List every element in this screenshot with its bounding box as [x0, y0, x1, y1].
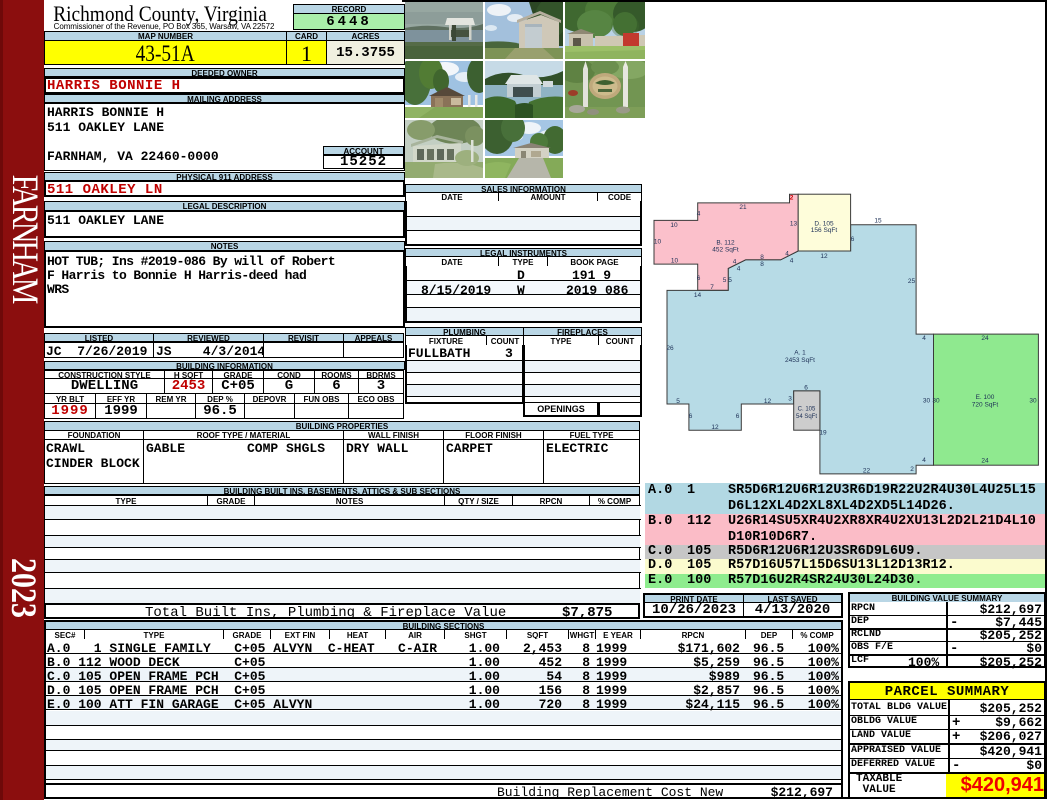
svg-text:21: 21 — [739, 204, 747, 211]
svg-text:3: 3 — [788, 396, 792, 403]
svg-text:4: 4 — [922, 457, 926, 464]
svg-text:C. 105: C. 105 — [798, 407, 816, 413]
svg-text:5: 5 — [676, 398, 680, 405]
svg-text:12: 12 — [711, 424, 719, 431]
svg-text:22: 22 — [863, 468, 871, 475]
svg-text:10: 10 — [670, 222, 678, 229]
svg-text:E. 100: E. 100 — [976, 394, 995, 401]
svg-text:2: 2 — [790, 195, 794, 202]
svg-text:15: 15 — [874, 218, 882, 225]
svg-text:12: 12 — [820, 253, 828, 260]
svg-text:54 SqFt: 54 SqFt — [796, 414, 817, 420]
svg-text:8: 8 — [760, 261, 764, 268]
svg-text:6: 6 — [736, 413, 740, 420]
svg-text:A. 1: A. 1 — [794, 350, 806, 357]
svg-text:14: 14 — [694, 292, 702, 299]
svg-text:19: 19 — [819, 430, 827, 437]
svg-text:5: 5 — [723, 277, 727, 284]
svg-text:6: 6 — [689, 413, 693, 420]
svg-text:10: 10 — [671, 258, 679, 265]
svg-text:4: 4 — [785, 251, 789, 258]
svg-text:4: 4 — [790, 258, 794, 265]
svg-text:6: 6 — [697, 275, 701, 282]
svg-text:24: 24 — [981, 458, 989, 465]
svg-text:13: 13 — [790, 221, 798, 228]
svg-text:452 SqFt: 452 SqFt — [712, 247, 739, 254]
svg-text:30: 30 — [932, 398, 940, 405]
svg-text:2453 SqFt: 2453 SqFt — [785, 357, 815, 364]
svg-text:720 SqFt: 720 SqFt — [972, 402, 999, 409]
svg-text:10: 10 — [654, 239, 662, 246]
svg-text:25: 25 — [908, 278, 916, 285]
svg-text:4: 4 — [737, 266, 741, 273]
svg-text:24: 24 — [981, 335, 989, 342]
svg-text:30: 30 — [923, 398, 931, 405]
svg-text:156 SqFt: 156 SqFt — [811, 227, 838, 234]
svg-text:4: 4 — [697, 211, 701, 218]
svg-text:4: 4 — [733, 259, 737, 266]
svg-text:6: 6 — [804, 385, 808, 392]
svg-text:7: 7 — [710, 284, 714, 291]
svg-text:8: 8 — [760, 254, 764, 261]
svg-text:2: 2 — [910, 466, 914, 473]
svg-text:26: 26 — [666, 345, 674, 352]
svg-text:B. 112: B. 112 — [716, 240, 735, 247]
svg-text:4: 4 — [922, 335, 926, 342]
svg-text:5: 5 — [728, 277, 732, 284]
svg-text:6: 6 — [851, 236, 855, 243]
svg-text:30: 30 — [1029, 398, 1037, 405]
svg-text:12: 12 — [764, 398, 772, 405]
